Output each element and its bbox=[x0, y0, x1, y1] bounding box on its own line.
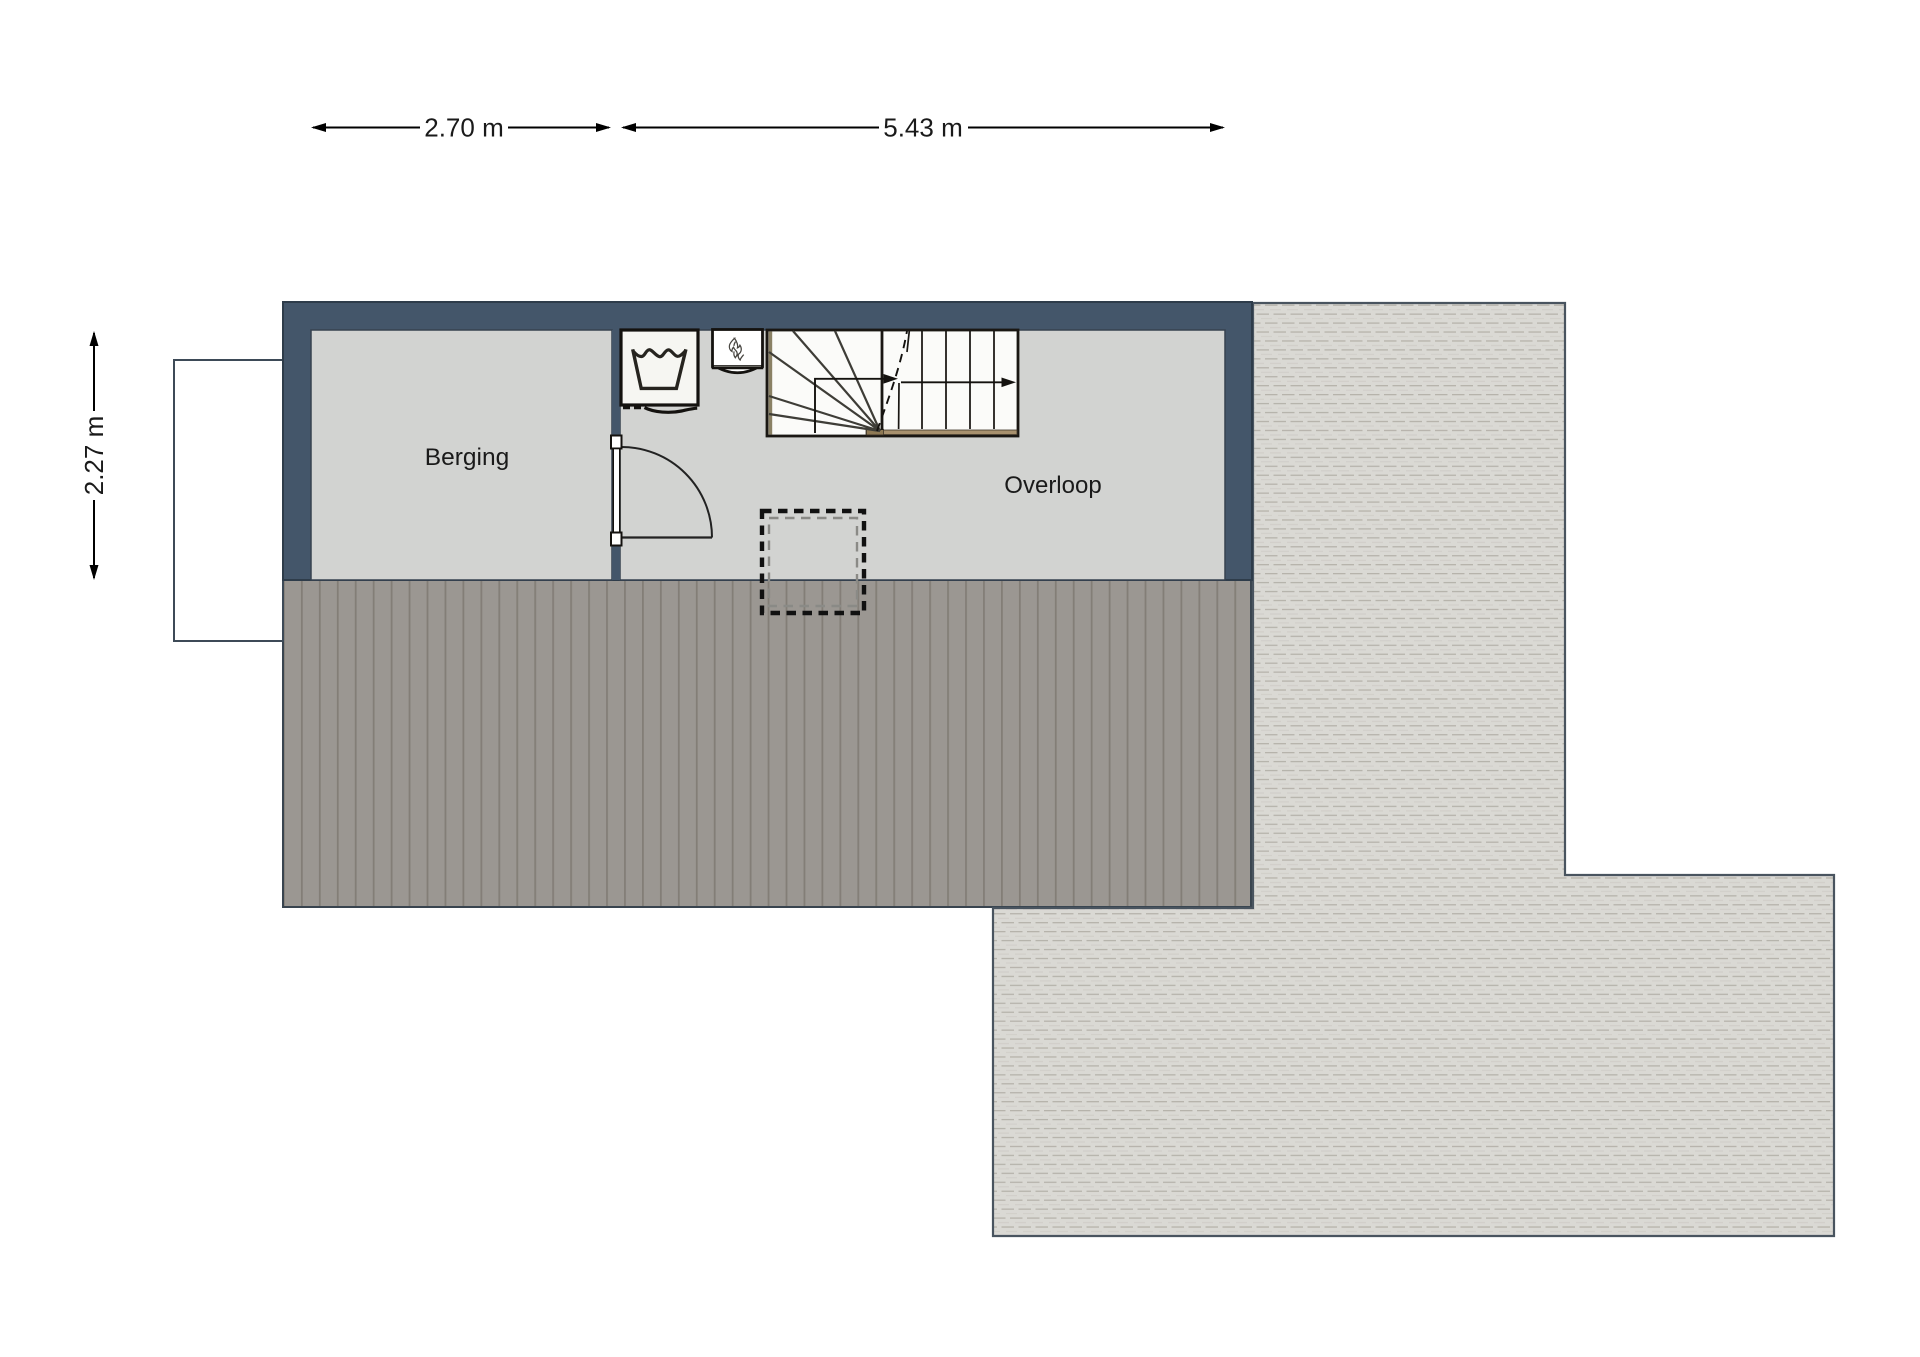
svg-text:Overloop: Overloop bbox=[1004, 472, 1101, 499]
svg-text:2.70 m: 2.70 m bbox=[424, 113, 504, 143]
svg-text:2.27 m: 2.27 m bbox=[79, 416, 109, 496]
svg-text:Berging: Berging bbox=[425, 444, 509, 471]
svg-text:5.43 m: 5.43 m bbox=[883, 113, 963, 143]
